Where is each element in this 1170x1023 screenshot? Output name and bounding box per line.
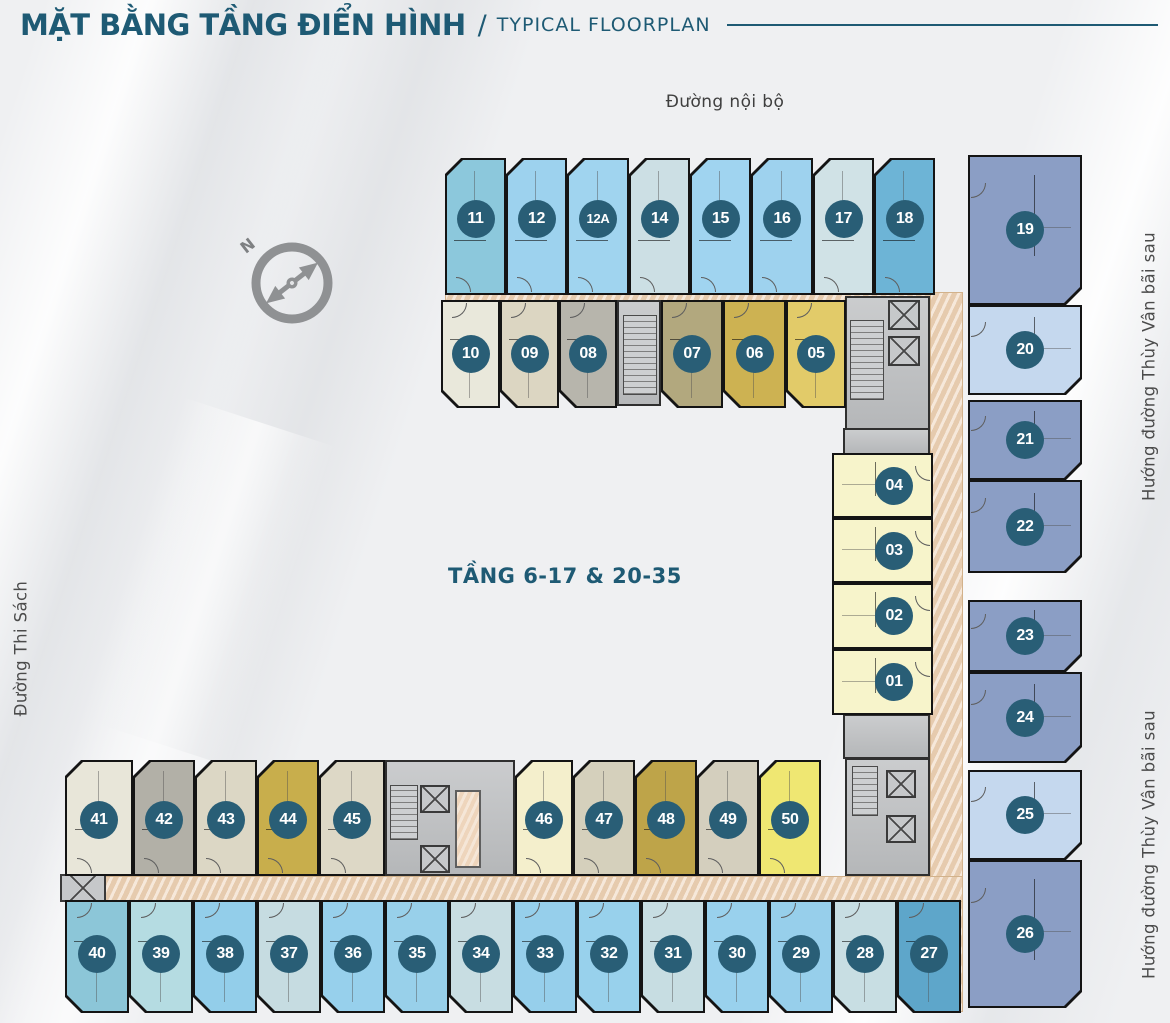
- door-swing-icon: [971, 888, 986, 903]
- elevator-shaft: [886, 815, 916, 843]
- page-header: MẶT BẰNG TẦNG ĐIỂN HÌNH / TYPICAL FLOORP…: [20, 8, 1162, 42]
- unit-floor-area: 05: [788, 302, 844, 406]
- unit-floor-area: 12: [508, 160, 565, 293]
- unit-floor-area: 28: [835, 902, 895, 1011]
- unit-floor-area: 11: [447, 160, 504, 293]
- unit-36: 36: [321, 900, 385, 1013]
- unit-number-badge: 20: [1006, 331, 1044, 369]
- unit-number-badge: 49: [709, 801, 747, 839]
- interior-wall: [883, 240, 915, 241]
- unit-floor-area: 33: [515, 902, 575, 1011]
- door-swing-icon: [144, 858, 159, 873]
- unit-26: 26: [968, 860, 1082, 1008]
- door-swing-icon: [770, 858, 785, 873]
- unit-floor-area: 04: [834, 455, 931, 516]
- unit-11: 11: [445, 158, 506, 295]
- unit-12: 12: [506, 158, 567, 295]
- title-rule-line: [727, 24, 1158, 26]
- unit-02: 02: [832, 583, 933, 649]
- unit-floor-area: 15: [692, 160, 749, 293]
- unit-floor-area: 01: [834, 651, 931, 713]
- unit-floor-area: 32: [579, 902, 639, 1011]
- unit-22: 22: [968, 480, 1082, 573]
- door-swing-icon: [971, 322, 986, 337]
- unit-15: 15: [690, 158, 751, 295]
- unit-floor-area: 40: [67, 902, 127, 1011]
- door-swing-icon: [971, 614, 986, 629]
- unit-03: 03: [832, 518, 933, 583]
- door-swing-icon: [909, 903, 924, 918]
- door-swing-icon: [672, 303, 687, 318]
- unit-number-badge: 46: [525, 801, 563, 839]
- unit-floor-area: 31: [643, 902, 703, 1011]
- door-swing-icon: [885, 277, 900, 292]
- unit-number-badge: 07: [673, 335, 711, 373]
- door-swing-icon: [206, 858, 221, 873]
- unit-number-badge: 12A: [579, 200, 617, 238]
- unit-20: 20: [968, 305, 1082, 395]
- stairwell: [852, 766, 878, 816]
- unit-floor-area: 46: [517, 762, 571, 874]
- unit-number-badge: 18: [886, 200, 924, 238]
- unit-16: 16: [751, 158, 813, 295]
- door-swing-icon: [701, 277, 716, 292]
- interior-wall: [842, 615, 875, 616]
- unit-number-badge: 27: [910, 935, 948, 973]
- interior-wall: [760, 240, 793, 241]
- unit-07: 07: [661, 300, 723, 408]
- unit-floor-area: 09: [502, 302, 557, 406]
- unit-floor-area: 20: [970, 307, 1080, 393]
- door-swing-icon: [456, 277, 471, 292]
- unit-44: 44: [257, 760, 319, 876]
- unit-41: 41: [65, 760, 133, 876]
- unit-39: 39: [129, 900, 193, 1013]
- unit-floor-area: 27: [899, 902, 959, 1011]
- unit-number-badge: 35: [398, 935, 436, 973]
- door-swing-icon: [578, 277, 593, 292]
- unit-number-badge: 05: [797, 335, 835, 373]
- street-label-right-upper: Hướng đường Thùy Vân bãi sau: [1140, 217, 1159, 517]
- unit-number-badge: 08: [569, 335, 607, 373]
- unit-number-badge: 10: [452, 335, 490, 373]
- unit-number-badge: 36: [334, 935, 372, 973]
- door-swing-icon: [845, 903, 860, 918]
- unit-number-badge: 45: [333, 801, 371, 839]
- unit-12A: 12A: [567, 158, 629, 295]
- unit-number-badge: 29: [782, 935, 820, 973]
- door-swing-icon: [517, 277, 532, 292]
- unit-number-badge: 28: [846, 935, 884, 973]
- interior-wall: [454, 240, 486, 241]
- unit-18: 18: [874, 158, 935, 295]
- door-swing-icon: [589, 903, 604, 918]
- interior-wall: [842, 484, 875, 485]
- unit-42: 42: [133, 760, 195, 876]
- door-swing-icon: [77, 858, 92, 873]
- door-swing-icon: [915, 596, 930, 611]
- unit-number-badge: 06: [736, 335, 774, 373]
- door-swing-icon: [77, 903, 92, 918]
- unit-number-badge: 17: [825, 200, 863, 238]
- unit-47: 47: [573, 760, 635, 876]
- unit-08: 08: [559, 300, 617, 408]
- unit-number-badge: 25: [1006, 796, 1044, 834]
- unit-38: 38: [193, 900, 257, 1013]
- unit-floor-area: 36: [323, 902, 383, 1011]
- unit-number-badge: 12: [518, 200, 556, 238]
- compass-icon: N: [237, 228, 347, 338]
- unit-04: 04: [832, 453, 933, 518]
- door-swing-icon: [141, 903, 156, 918]
- unit-number-badge: 40: [78, 935, 116, 973]
- unit-floor-area: 41: [67, 762, 131, 874]
- unit-number-badge: 39: [142, 935, 180, 973]
- unit-floor-area: 39: [131, 902, 191, 1011]
- street-label-left: Đường Thi Sách: [12, 549, 31, 749]
- stairwell: [390, 785, 418, 840]
- road-label-top: Đường nội bộ: [600, 92, 850, 112]
- unit-floor-area: 37: [259, 902, 319, 1011]
- elevator-shaft: [420, 785, 450, 813]
- unit-29: 29: [769, 900, 833, 1013]
- unit-number-badge: 15: [702, 200, 740, 238]
- unit-number-badge: 16: [763, 200, 801, 238]
- unit-floor-area: 17: [815, 160, 872, 293]
- unit-number-badge: 30: [718, 935, 756, 973]
- unit-number-badge: 50: [771, 801, 809, 839]
- unit-50: 50: [759, 760, 821, 876]
- floorplan-canvas: MẶT BẰNG TẦNG ĐIỂN HÌNH / TYPICAL FLOORP…: [0, 0, 1170, 1023]
- unit-40: 40: [65, 900, 129, 1013]
- unit-31: 31: [641, 900, 705, 1013]
- unit-floor-area: 29: [771, 902, 831, 1011]
- unit-33: 33: [513, 900, 577, 1013]
- unit-09: 09: [500, 300, 559, 408]
- unit-25: 25: [968, 770, 1082, 860]
- door-swing-icon: [205, 903, 220, 918]
- page-title-vietnamese: MẶT BẰNG TẦNG ĐIỂN HÌNH: [20, 8, 466, 42]
- door-swing-icon: [646, 858, 661, 873]
- unit-floor-area: 38: [195, 902, 255, 1011]
- unit-number-badge: 02: [875, 597, 913, 635]
- unit-floor-area: 21: [970, 402, 1080, 478]
- unit-35: 35: [385, 900, 449, 1013]
- door-swing-icon: [526, 858, 541, 873]
- door-swing-icon: [971, 690, 986, 705]
- unit-number-badge: 37: [270, 935, 308, 973]
- unit-49: 49: [697, 760, 759, 876]
- unit-number-badge: 32: [590, 935, 628, 973]
- unit-floor-area: 30: [707, 902, 767, 1011]
- unit-floor-area: 35: [387, 902, 447, 1011]
- unit-number-badge: 03: [875, 532, 913, 570]
- door-swing-icon: [653, 903, 668, 918]
- door-swing-icon: [333, 903, 348, 918]
- interior-wall: [842, 681, 875, 682]
- door-swing-icon: [461, 903, 476, 918]
- elevator-shaft: [888, 336, 920, 366]
- door-swing-icon: [331, 858, 346, 873]
- elevator-shaft: [886, 770, 916, 798]
- unit-19: 19: [968, 155, 1082, 305]
- unit-floor-area: 24: [970, 674, 1080, 761]
- unit-17: 17: [813, 158, 874, 295]
- unit-floor-area: 26: [970, 862, 1080, 1006]
- unit-number-badge: 19: [1006, 211, 1044, 249]
- door-swing-icon: [762, 277, 777, 292]
- unit-46: 46: [515, 760, 573, 876]
- unit-floor-area: 07: [663, 302, 721, 406]
- unit-floor-area: 49: [699, 762, 757, 874]
- interior-wall: [699, 240, 731, 241]
- light-well: [455, 790, 481, 868]
- elevator-shaft: [888, 300, 920, 330]
- unit-06: 06: [723, 300, 786, 408]
- unit-floor-area: 47: [575, 762, 633, 874]
- door-swing-icon: [971, 787, 986, 802]
- door-swing-icon: [570, 303, 585, 318]
- unit-number-badge: 43: [207, 801, 245, 839]
- unit-floor-area: 48: [637, 762, 695, 874]
- unit-floor-area: 50: [761, 762, 819, 874]
- unit-32: 32: [577, 900, 641, 1013]
- elevator-shaft: [420, 845, 450, 873]
- elevator-shaft: [60, 874, 106, 902]
- unit-floor-area: 12A: [569, 160, 627, 293]
- door-swing-icon: [781, 903, 796, 918]
- interior-wall: [822, 240, 854, 241]
- unit-10: 10: [441, 300, 500, 408]
- door-swing-icon: [915, 531, 930, 546]
- unit-14: 14: [629, 158, 690, 295]
- stairwell: [623, 315, 657, 395]
- page-title-english: TYPICAL FLOORPLAN: [497, 14, 711, 36]
- unit-37: 37: [257, 900, 321, 1013]
- unit-floor-area: 42: [135, 762, 193, 874]
- door-swing-icon: [824, 277, 839, 292]
- door-swing-icon: [397, 903, 412, 918]
- title-separator: /: [478, 10, 487, 41]
- unit-floor-area: 18: [876, 160, 933, 293]
- door-swing-icon: [269, 903, 284, 918]
- unit-floor-area: 03: [834, 520, 931, 581]
- unit-number-badge: 42: [145, 801, 183, 839]
- unit-number-badge: 01: [875, 663, 913, 701]
- unit-24: 24: [968, 672, 1082, 763]
- door-swing-icon: [584, 858, 599, 873]
- service-core: [843, 428, 930, 455]
- unit-27: 27: [897, 900, 961, 1013]
- unit-floor-area: 10: [443, 302, 498, 406]
- stairwell: [850, 320, 884, 400]
- door-swing-icon: [268, 858, 283, 873]
- interior-wall: [638, 240, 670, 241]
- unit-number-badge: 38: [206, 935, 244, 973]
- unit-01: 01: [832, 649, 933, 715]
- street-label-right-lower: Hướng đường Thùy Vân bãi sau: [1140, 695, 1159, 995]
- door-swing-icon: [525, 903, 540, 918]
- door-swing-icon: [734, 303, 749, 318]
- unit-number-badge: 09: [511, 335, 549, 373]
- interior-wall: [842, 549, 875, 550]
- unit-number-badge: 44: [269, 801, 307, 839]
- door-swing-icon: [971, 498, 986, 513]
- unit-number-badge: 21: [1006, 421, 1044, 459]
- unit-23: 23: [968, 600, 1082, 672]
- unit-30: 30: [705, 900, 769, 1013]
- unit-number-badge: 47: [585, 801, 623, 839]
- unit-number-badge: 04: [875, 467, 913, 505]
- door-swing-icon: [640, 277, 655, 292]
- unit-28: 28: [833, 900, 897, 1013]
- door-swing-icon: [708, 858, 723, 873]
- unit-05: 05: [786, 300, 846, 408]
- unit-floor-area: 02: [834, 585, 931, 647]
- unit-number-badge: 34: [462, 935, 500, 973]
- unit-floor-area: 16: [753, 160, 811, 293]
- unit-21: 21: [968, 400, 1082, 480]
- unit-number-badge: 22: [1006, 508, 1044, 546]
- floor-range-label: TẦNG 6-17 & 20-35: [448, 564, 682, 588]
- service-core: [843, 714, 930, 759]
- unit-number-badge: 33: [526, 935, 564, 973]
- unit-floor-area: 45: [321, 762, 383, 874]
- door-swing-icon: [971, 416, 986, 431]
- door-swing-icon: [797, 303, 812, 318]
- door-swing-icon: [915, 466, 930, 481]
- interior-wall: [515, 240, 547, 241]
- unit-floor-area: 44: [259, 762, 317, 874]
- unit-floor-area: 06: [725, 302, 784, 406]
- unit-number-badge: 48: [647, 801, 685, 839]
- unit-number-badge: 31: [654, 935, 692, 973]
- unit-number-badge: 14: [641, 200, 679, 238]
- unit-floor-area: 34: [451, 902, 511, 1011]
- unit-number-badge: 26: [1006, 915, 1044, 953]
- unit-floor-area: 25: [970, 772, 1080, 858]
- unit-floor-area: 19: [970, 157, 1080, 303]
- unit-48: 48: [635, 760, 697, 876]
- corridor: [65, 876, 963, 902]
- unit-43: 43: [195, 760, 257, 876]
- unit-45: 45: [319, 760, 385, 876]
- door-swing-icon: [511, 303, 526, 318]
- door-swing-icon: [915, 662, 930, 677]
- unit-number-badge: 24: [1006, 699, 1044, 737]
- unit-floor-area: 08: [561, 302, 615, 406]
- unit-floor-area: 14: [631, 160, 688, 293]
- unit-floor-area: 22: [970, 482, 1080, 571]
- compass-north-letter: N: [237, 234, 259, 257]
- door-swing-icon: [971, 183, 986, 198]
- unit-floor-area: 23: [970, 602, 1080, 670]
- unit-number-badge: 41: [80, 801, 118, 839]
- unit-number-badge: 11: [457, 200, 495, 238]
- door-swing-icon: [717, 903, 732, 918]
- unit-floor-area: 43: [197, 762, 255, 874]
- door-swing-icon: [452, 303, 467, 318]
- unit-number-badge: 23: [1006, 617, 1044, 655]
- interior-wall: [576, 240, 609, 241]
- unit-34: 34: [449, 900, 513, 1013]
